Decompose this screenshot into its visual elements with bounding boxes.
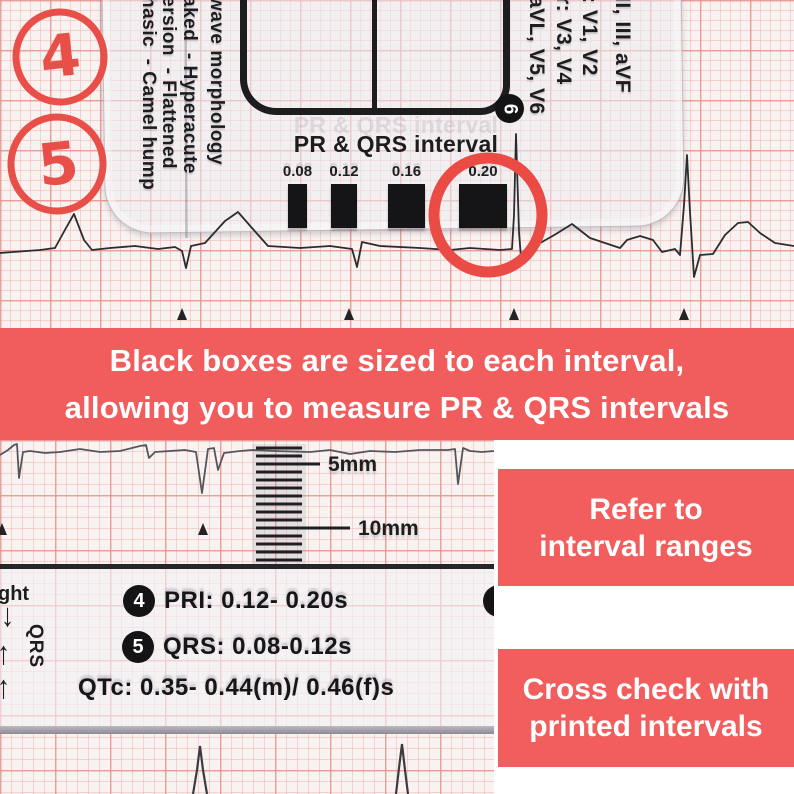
infographic-canvas: 6 wave morphology aked - Hyperacute ersi… (0, 0, 794, 794)
note-1-line-1: Refer to (589, 491, 702, 528)
hand-digit-5: 5 (35, 128, 82, 200)
note-cross-check-printed-intervals: Cross check with printed intervals (498, 649, 794, 767)
caption-banner: Black boxes are sized to each interval, … (0, 328, 794, 440)
note-1-line-2: interval ranges (539, 528, 752, 565)
red-annotations (0, 0, 794, 328)
caption-line-2: allowing you to measure PR & QRS interva… (65, 384, 730, 431)
note-refer-to-interval-ranges: Refer to interval ranges (498, 469, 794, 586)
note-2-line-2: printed intervals (529, 708, 762, 745)
ecg-trace-bottom-lower (0, 440, 494, 794)
top-photo-ecg-ruler: 6 wave morphology aked - Hyperacute ersi… (0, 0, 794, 328)
note-2-line-1: Cross check with (523, 671, 770, 708)
hand-digit-4: 4 (37, 20, 84, 92)
caption-line-1: Black boxes are sized to each interval, (110, 337, 685, 384)
highlight-circle-020 (434, 158, 542, 272)
bottom-photo-ecg-ruler: 5mm 10mm ght ↓ ↑ ↑ QRS 4 PRI: 0.12- 0.20… (0, 440, 494, 794)
side-note-panel: Refer to interval ranges Cross check wit… (494, 440, 794, 794)
